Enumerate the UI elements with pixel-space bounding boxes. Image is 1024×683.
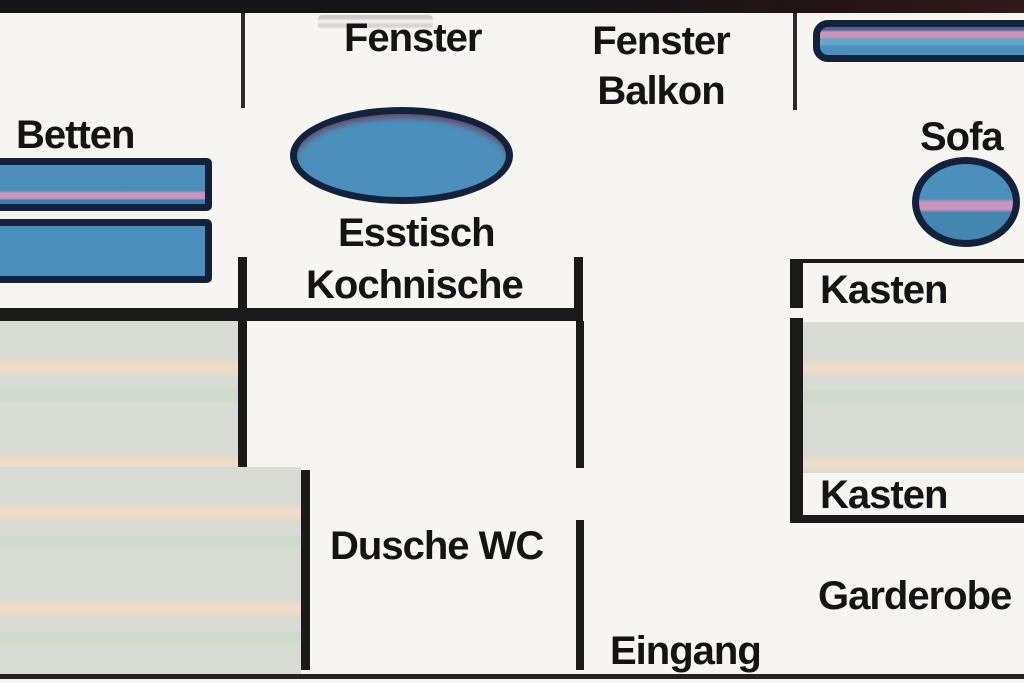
outer-wall-bottom: [0, 674, 1024, 679]
bathroom-wall-lower: [301, 470, 310, 670]
shaded-area-left-lower: [0, 467, 301, 674]
interior-wall-horizontal: [0, 308, 583, 321]
sofa-circle: [912, 157, 1020, 247]
window-divider-right: [793, 13, 797, 110]
label-beds: Betten: [16, 113, 134, 157]
window-divider-left: [241, 13, 245, 108]
label-closet-bottom: Kasten: [820, 473, 947, 517]
label-window-left: Fenster: [344, 16, 482, 60]
label-window-balcony: Fenster Balkon: [576, 16, 746, 116]
kitchenette-wall-right: [574, 257, 583, 312]
label-window-balcony-line1: Fenster: [576, 16, 746, 66]
closet-wall-left-lower: [790, 318, 803, 523]
label-closet-top: Kasten: [820, 268, 947, 312]
shaded-area-closet: [803, 322, 1024, 473]
shaded-area-left-upper: [0, 321, 238, 467]
label-window-balcony-line2: Balkon: [576, 66, 746, 116]
label-sofa: Sofa: [920, 115, 1003, 159]
label-kitchenette: Kochnische: [306, 263, 523, 307]
closet-wall-top: [790, 259, 1024, 263]
hallway-wall-upper: [576, 321, 584, 468]
label-wardrobe: Garderobe: [818, 574, 1011, 618]
label-dining-table: Esstisch: [338, 211, 495, 255]
label-shower-wc: Dusche WC: [330, 524, 543, 568]
outer-wall-top: [0, 0, 1024, 13]
bathroom-wall-upper: [238, 321, 247, 467]
hallway-wall-lower: [576, 520, 584, 670]
closet-wall-left-upper: [790, 259, 803, 308]
kitchenette-wall-left: [238, 257, 247, 312]
balcony-bench-bar: [813, 20, 1024, 62]
dining-table-ellipse: [290, 107, 513, 204]
label-entrance: Eingang: [610, 629, 761, 673]
floor-plan: Fenster Fenster Balkon Betten Esstisch K…: [0, 0, 1024, 683]
bed-rect-1: [0, 158, 212, 211]
bed-rect-2: [0, 219, 212, 283]
